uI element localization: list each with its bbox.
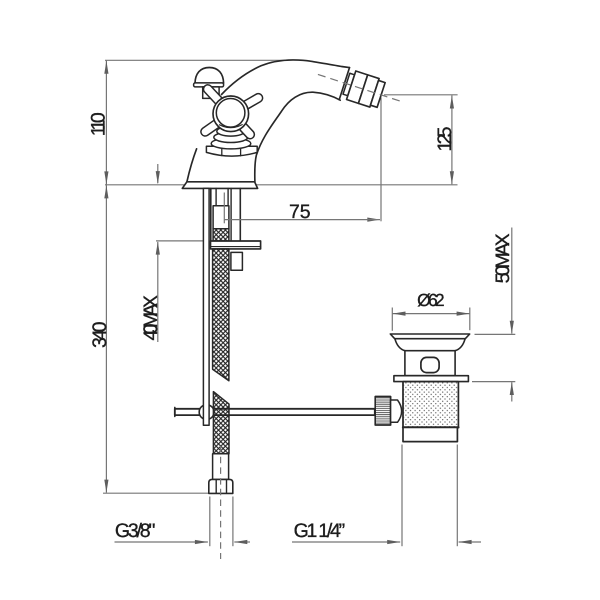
svg-text:G1 1/4”: G1 1/4” [294, 520, 346, 542]
svg-text:75: 75 [289, 201, 311, 223]
svg-text:340: 340 [89, 321, 111, 348]
svg-text:Ø62: Ø62 [417, 290, 445, 310]
svg-text:50MAX: 50MAX [492, 233, 514, 283]
svg-text:40MAX: 40MAX [140, 295, 162, 341]
svg-text:110: 110 [88, 112, 110, 136]
svg-text:125: 125 [434, 126, 456, 151]
svg-text:G3/8": G3/8" [115, 520, 156, 542]
